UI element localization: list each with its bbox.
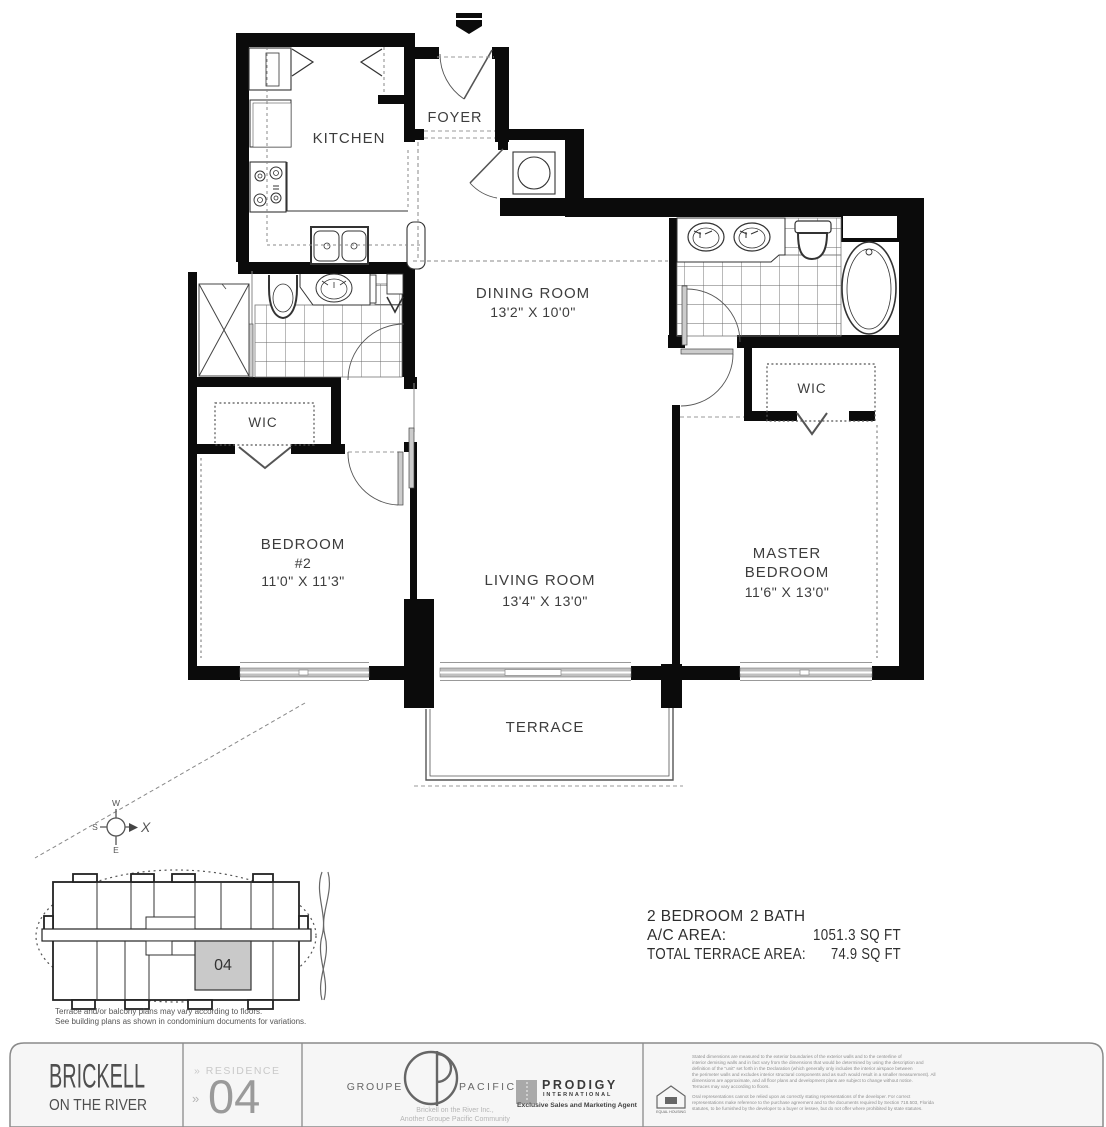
svg-text:»: » bbox=[192, 1091, 199, 1106]
svg-text:FOYER: FOYER bbox=[428, 110, 483, 126]
svg-text:LIVING ROOM: LIVING ROOM bbox=[484, 572, 595, 589]
svg-text:W: W bbox=[112, 798, 120, 808]
svg-text:11'6" X 13'0": 11'6" X 13'0" bbox=[745, 584, 830, 600]
svg-text:the perimeter walls and exclud: the perimeter walls and excludes interio… bbox=[692, 1072, 936, 1077]
svg-text:11'0" X 11'3": 11'0" X 11'3" bbox=[261, 573, 345, 589]
svg-text:Exclusive Sales and Marketing: Exclusive Sales and Marketing Agent bbox=[517, 1102, 638, 1109]
svg-text:2 BATH: 2 BATH bbox=[750, 908, 806, 925]
svg-text:74.9 SQ FT: 74.9 SQ FT bbox=[831, 946, 901, 963]
svg-text:definition of the "unit" set f: definition of the "unit" set forth in th… bbox=[692, 1066, 913, 1071]
svg-text:statutes, to be furnished by t: statutes, to be furnished by the develop… bbox=[692, 1106, 923, 1111]
svg-text:See building plans as shown in: See building plans as shown in condomini… bbox=[55, 1017, 306, 1026]
svg-text:S: S bbox=[92, 822, 98, 832]
svg-text:04: 04 bbox=[214, 957, 232, 974]
svg-text:A/C AREA:: A/C AREA: bbox=[647, 927, 726, 944]
svg-text:PACIFIC: PACIFIC bbox=[459, 1081, 516, 1093]
svg-text:dimensions are approximate, an: dimensions are approximate, and all floo… bbox=[692, 1078, 913, 1083]
svg-text:Brickell on the River Inc.,: Brickell on the River Inc., bbox=[416, 1107, 493, 1114]
svg-text:DINING ROOM: DINING ROOM bbox=[476, 285, 590, 302]
svg-text:EQUAL HOUSING: EQUAL HOUSING bbox=[656, 1110, 686, 1114]
svg-text:KITCHEN: KITCHEN bbox=[313, 130, 386, 147]
svg-text:Oral representations cannot be: Oral representations cannot be relied up… bbox=[692, 1094, 911, 1099]
svg-text:BRICKELL: BRICKELL bbox=[49, 1056, 145, 1095]
svg-text:Terraces may vary according to: Terraces may vary according to floors. bbox=[692, 1084, 770, 1089]
svg-text:BEDROOM: BEDROOM bbox=[745, 564, 830, 581]
svg-text:13'4" X 13'0": 13'4" X 13'0" bbox=[502, 593, 588, 609]
svg-text:MASTER: MASTER bbox=[753, 545, 822, 562]
svg-text:#2: #2 bbox=[295, 555, 312, 571]
svg-text:representations make reference: representations make reference to the pu… bbox=[692, 1100, 934, 1105]
svg-text:TOTAL TERRACE AREA:: TOTAL TERRACE AREA: bbox=[647, 946, 806, 963]
svg-text:E: E bbox=[113, 845, 119, 855]
svg-text:04: 04 bbox=[208, 1070, 260, 1123]
svg-text:2 BEDROOM: 2 BEDROOM bbox=[647, 908, 744, 925]
svg-text:Stated dimensions are measured: Stated dimensions are measured to the ex… bbox=[692, 1054, 902, 1059]
svg-text:1051.3 SQ FT: 1051.3 SQ FT bbox=[813, 927, 901, 944]
svg-text:X: X bbox=[140, 819, 151, 835]
svg-text:WIC: WIC bbox=[248, 415, 277, 430]
svg-text:13'2" X 10'0": 13'2" X 10'0" bbox=[490, 304, 576, 320]
svg-text:interior demising walls and in: interior demising walls and in fact vary… bbox=[692, 1060, 924, 1065]
svg-text:WIC: WIC bbox=[797, 381, 826, 396]
svg-text:Another Groupe Pacific Communi: Another Groupe Pacific Community bbox=[400, 1116, 510, 1123]
svg-text:GROUPE: GROUPE bbox=[347, 1081, 403, 1093]
svg-text:TERRACE: TERRACE bbox=[506, 719, 585, 736]
svg-text:ON THE RIVER: ON THE RIVER bbox=[49, 1097, 147, 1114]
svg-text:Terrace and/or balcony plans m: Terrace and/or balcony plans may vary ac… bbox=[55, 1007, 262, 1016]
svg-text:BEDROOM: BEDROOM bbox=[261, 536, 346, 553]
svg-text:PRODIGY: PRODIGY bbox=[542, 1078, 618, 1092]
